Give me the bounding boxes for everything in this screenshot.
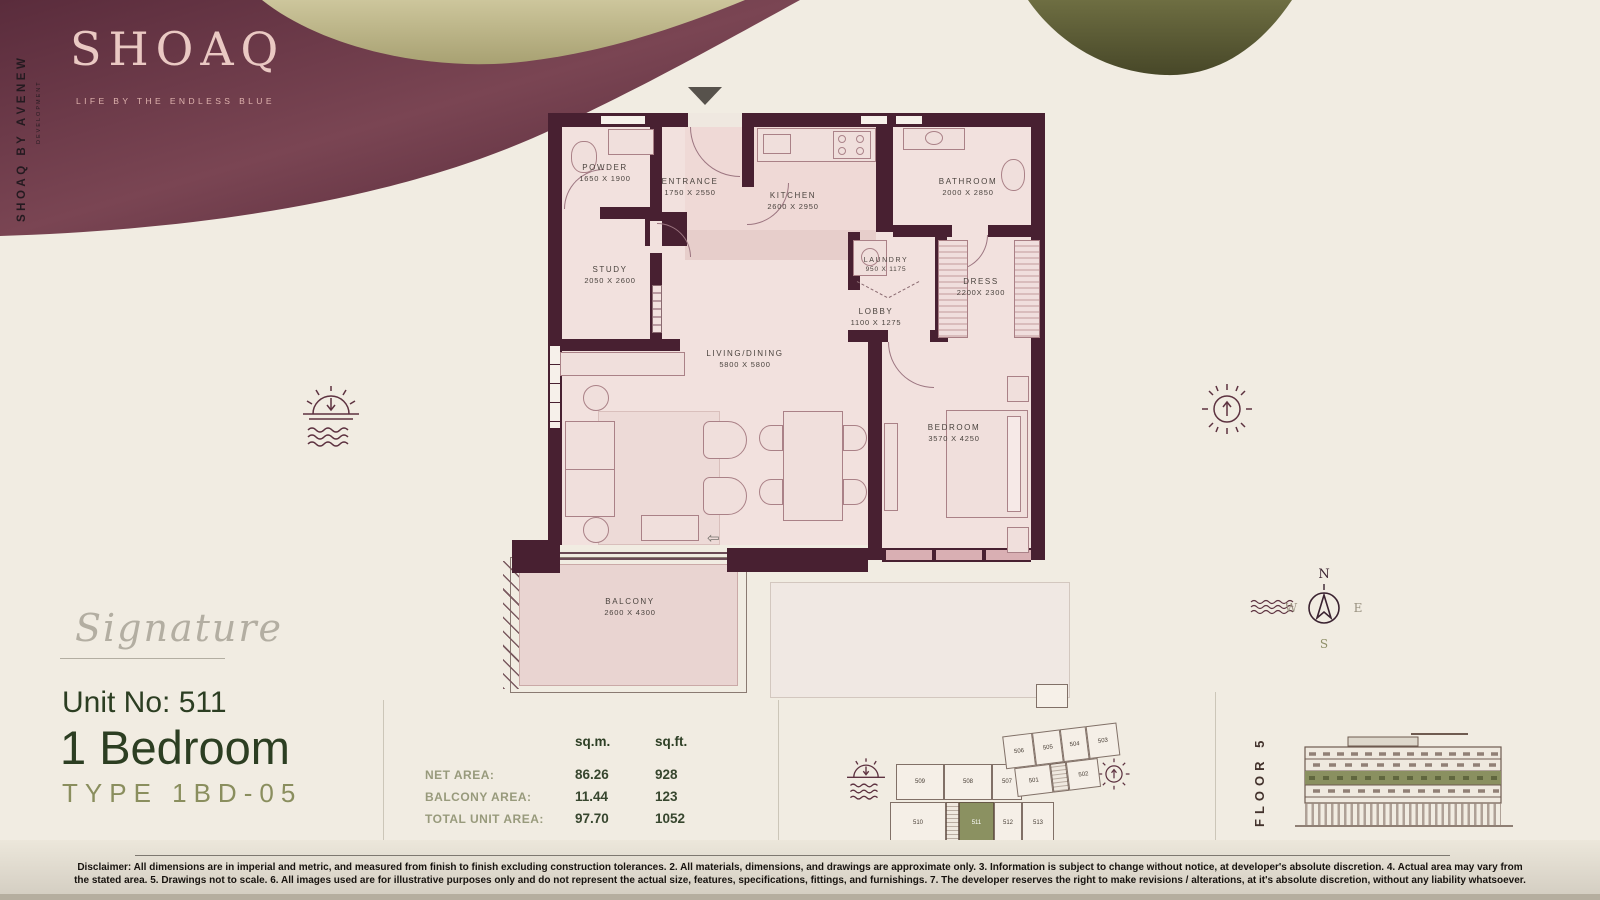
room-label-living-dining: LIVING/DINING5800 X 5800 [695,349,795,369]
sunset-icon-small [845,752,887,804]
compass-w: W [1285,601,1298,615]
key-plan-unit: 505 [1032,729,1064,765]
bed-pillows [1007,416,1021,512]
room-label-balcony: BALCONY2600 X 4300 [550,597,710,617]
balcony-balustrade [503,561,519,689]
net-area-sqm: 86.26 [575,767,609,782]
dining-table [783,411,843,521]
net-area-sqft: 928 [655,767,678,782]
key-plan-unit: 501 [1014,764,1053,797]
areas-col-sqft: sq.ft. [655,734,687,749]
net-area-label: NET AREA: [425,768,494,782]
compass-n: N [1318,567,1329,582]
room-label-study: STUDY2050 X 2600 [560,265,660,285]
key-plan-unit: 512 [994,802,1022,844]
key-plan-right-wing: 506 505 504 503 501 502 [1002,722,1127,800]
room-label-bedroom: BEDROOM3570 X 4250 [904,423,1004,443]
dining-chair-tr [843,425,867,451]
bedroom-dresser [884,423,898,511]
key-plan-unit: 503 [1086,722,1121,759]
room-label-lobby: LOBBY1100 X 1275 [836,307,916,327]
balcony-floor [519,564,738,686]
sunset-icon [300,378,362,452]
brand-side-subtext: DEVELOPMENT [36,44,42,144]
key-plan: 509 508 507 510 511 512 513 506 505 504 … [882,728,1140,856]
armchair-1 [703,421,747,459]
key-plan-unit: 513 [1022,802,1054,844]
divider-1 [383,700,384,848]
areas-table: sq.m. sq.ft. NET AREA: 86.26 928 BALCONY… [425,732,725,832]
disclaimer-text: Disclaimer: All dimensions are in imperi… [70,861,1530,887]
wall-bottom-mid [727,548,868,572]
window-top-2 [860,115,888,125]
dining-chair-tl [759,425,783,451]
dining-chair-bl [759,479,783,505]
kitchen-stove [833,131,871,159]
key-plan-unit-highlighted: 511 [959,802,994,844]
balcony-area-sqm: 11.44 [575,789,608,804]
window-top-3 [895,115,923,125]
room-label-bathroom: BATHROOM2000 X 2850 [918,177,1018,197]
dining-chair-br [843,479,867,505]
key-plan-unit: 510 [890,802,946,844]
brand-logo: SHOAQ [70,22,285,76]
room-label-kitchen: KITCHEN2600 X 2950 [743,191,843,211]
room-label-entrance: ENTRANCE1750 X 2550 [640,177,740,197]
collection-name: Signature [75,606,283,650]
total-area-sqft: 1052 [655,811,685,826]
sunrise-icon [1198,380,1256,438]
compass-icon: N W E S [1282,562,1366,654]
brand-tagline: LIFE BY THE ENDLESS BLUE [76,96,275,106]
sofa [565,421,615,517]
unit-type: TYPE 1BD-05 [62,778,302,809]
total-area-label: TOTAL UNIT AREA: [425,812,544,826]
divider-2 [778,700,779,848]
wall-corner-bottom-left [512,540,560,573]
balcony-sliding-door [560,552,727,560]
olive-wave [1028,0,1292,75]
footer-rule [135,855,1450,856]
side-table-bottom [583,517,609,543]
key-plan-unit: 509 [896,764,944,800]
coffee-table [641,515,699,541]
nightstand-1 [1007,376,1029,402]
signature-underline [60,658,225,659]
bathroom-sink [925,131,943,145]
wall-bedroom-left [868,342,882,560]
entrance-opening [688,113,742,127]
door-gap-bedroom [888,330,930,342]
key-plan-stairs [946,802,959,844]
footer-strip [0,894,1600,900]
balcony-area-sqft: 123 [655,789,678,804]
key-plan-unit: 502 [1066,758,1101,791]
nightstand-2 [1007,527,1029,553]
footer: Disclaimer: All dimensions are in imperi… [0,840,1600,900]
powder-sink [608,129,654,155]
brand-side-text: SHOAQ BY ĀVENEW [16,36,28,222]
side-table-top [583,385,609,411]
key-plan-unit: 506 [1002,733,1036,769]
room-label-laundry: LAUNDRY950 X 1175 [846,257,926,273]
armchair-2 [703,477,747,515]
areas-col-sqm: sq.m. [575,734,610,749]
compass-e: E [1354,601,1363,615]
divider-3 [1215,692,1216,844]
building-elevation [1293,727,1515,829]
kitchen-sink [763,134,791,154]
compass-s: S [1320,637,1328,651]
key-plan-unit: 508 [944,764,992,800]
floor-label: FLOOR 5 [1252,733,1267,827]
shelf-strip [652,285,662,333]
console-table [560,352,685,376]
unit-bedrooms: 1 Bedroom [60,720,290,775]
room-label-dress: DRESS2200X 2300 [941,277,1021,297]
key-plan-unit: 504 [1060,726,1090,762]
balcony-exit-arrow: ⇦ [707,529,720,547]
floor-plan: ⇦ POWDER1650 X 1900 ENTRANCE1750 X 2550 … [505,85,1070,713]
wall-study-bottom [548,339,680,351]
neighbour-terrace [770,582,1070,698]
balcony-area-label: BALCONY AREA: [425,790,532,804]
total-area-sqm: 97.70 [575,811,609,826]
wall-kitchen-right [876,127,893,232]
window-top-1 [600,115,646,125]
unit-number: Unit No: 511 [62,686,227,720]
entrance-arrow-icon [688,87,722,105]
key-plan-annex [1036,684,1068,708]
wall-kitchen-left [742,127,754,187]
